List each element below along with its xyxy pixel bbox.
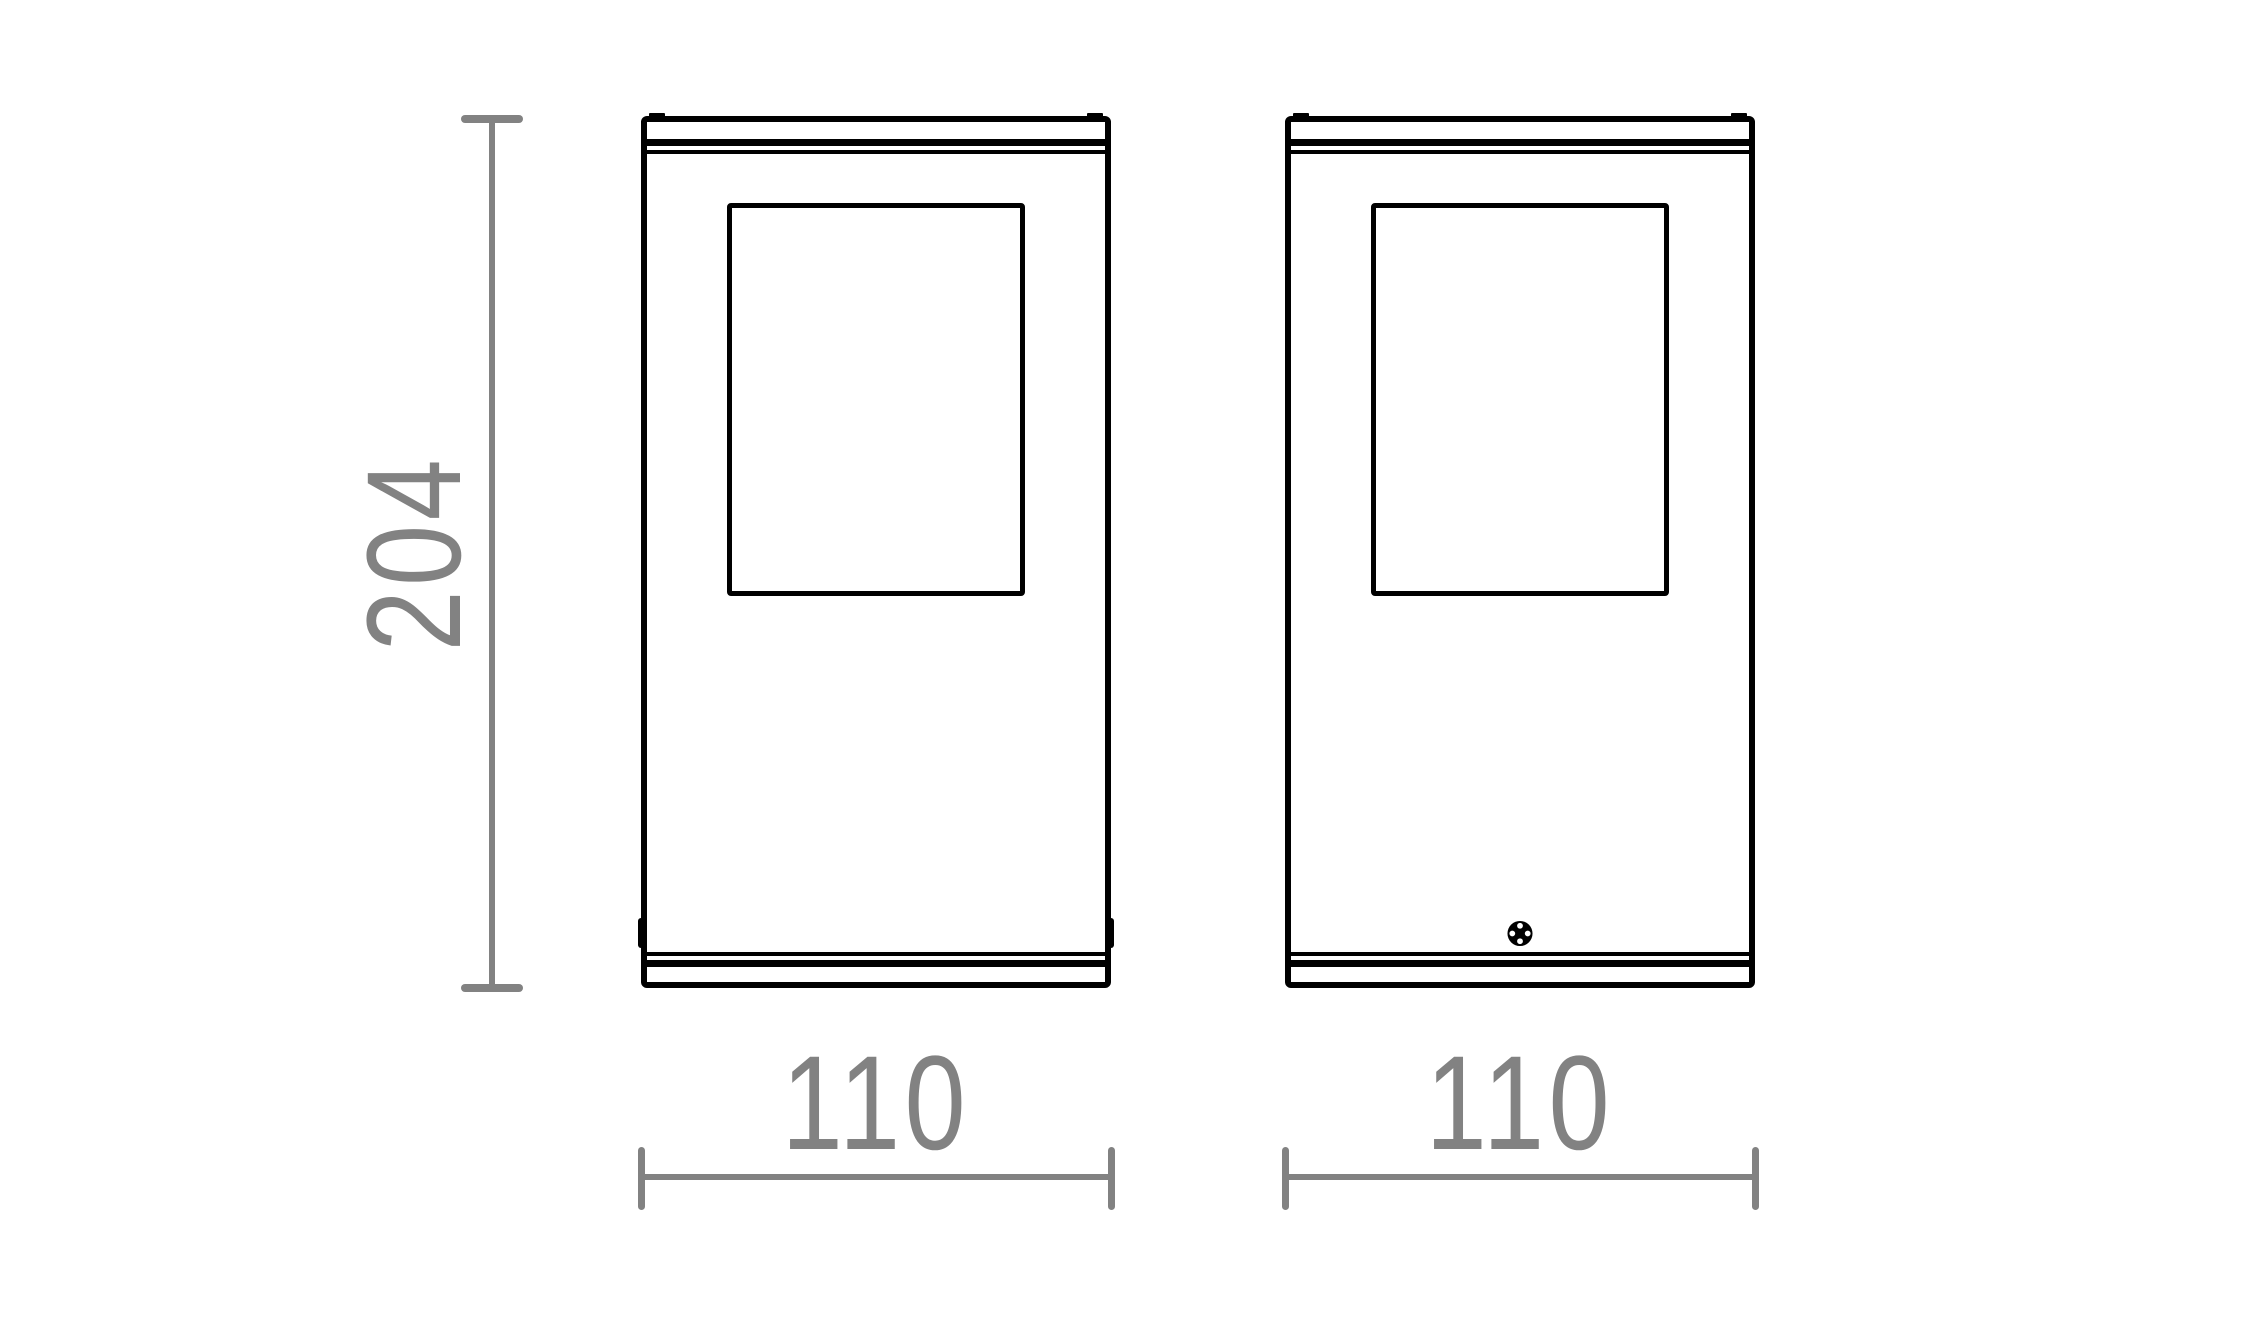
front-bottom-rim-thin-line (647, 952, 1105, 956)
rear-bottom-rim-thin-line (1291, 952, 1749, 956)
technical-dimension-drawing: 204 (0, 0, 2268, 1323)
height-dimension-label: 204 (345, 393, 485, 713)
left-side-clip-icon (638, 918, 644, 948)
rear-width-dimension-label: 110 (1360, 1034, 1680, 1174)
front-bottom-rim-line (647, 960, 1105, 967)
height-dimension-bottom-cap (461, 984, 523, 992)
rear-diffuser-window (1371, 203, 1669, 596)
height-dimension-top-cap (461, 115, 523, 123)
rear-width-left-tick (1282, 1147, 1289, 1210)
rear-top-rim-thin-line (1291, 150, 1749, 154)
front-width-left-tick (638, 1147, 645, 1210)
height-dimension-line (489, 119, 495, 988)
rear-top-rim-line (1291, 139, 1749, 146)
rear-width-right-tick (1752, 1147, 1759, 1210)
phillips-screw-head-icon (1507, 920, 1534, 947)
front-top-rim-thin-line (647, 150, 1105, 154)
rear-bottom-rim-line (1291, 960, 1749, 967)
front-top-rim-line (647, 139, 1105, 146)
front-view-outline (641, 116, 1111, 988)
front-width-dimension-value: 110 (782, 1037, 970, 1171)
front-diffuser-window (727, 203, 1025, 596)
top-right-lid-tab-icon (1087, 113, 1103, 118)
top-right-lid-tab-icon (1731, 113, 1747, 118)
right-side-clip-icon (1108, 918, 1114, 948)
height-dimension-value: 204 (348, 455, 482, 652)
rear-view-outline (1285, 116, 1755, 988)
front-width-right-tick (1108, 1147, 1115, 1210)
rear-width-dimension-value: 110 (1426, 1037, 1614, 1171)
front-width-dimension-label: 110 (716, 1034, 1036, 1174)
top-left-lid-tab-icon (1293, 113, 1309, 118)
top-left-lid-tab-icon (649, 113, 665, 118)
